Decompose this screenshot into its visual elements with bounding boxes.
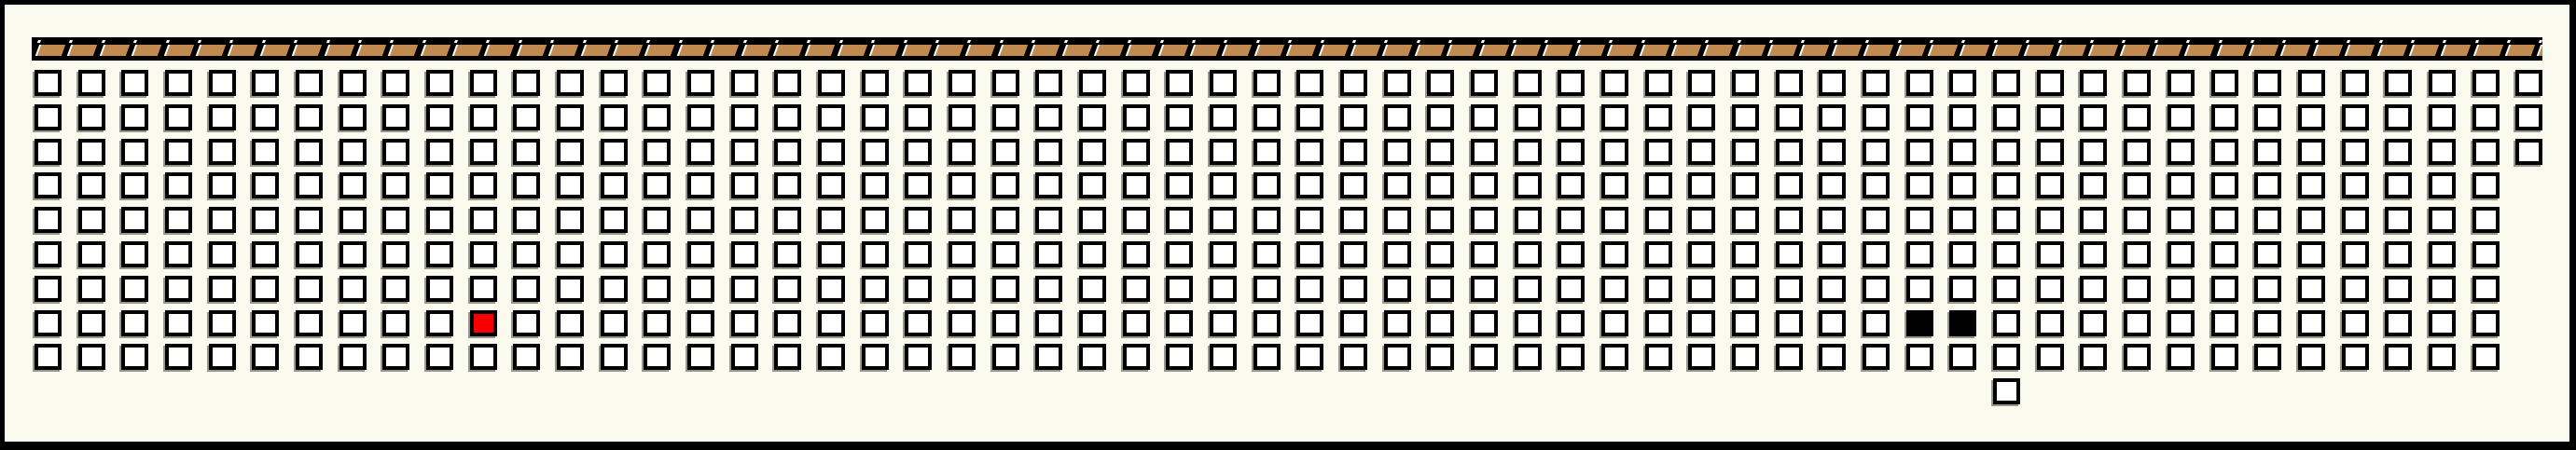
grid-cell[interactable] — [209, 104, 236, 130]
grid-cell[interactable] — [121, 241, 148, 267]
grid-cell[interactable] — [1601, 241, 1628, 267]
grid-cell[interactable] — [2037, 310, 2064, 336]
grid-cell[interactable] — [1471, 104, 1498, 130]
grid-cell[interactable] — [687, 207, 714, 233]
grid-cell[interactable] — [1515, 310, 1542, 336]
grid-cell[interactable] — [2298, 344, 2325, 370]
grid-cell[interactable] — [1427, 104, 1454, 130]
grid-cell[interactable] — [2342, 241, 2369, 267]
grid-cell[interactable] — [513, 139, 540, 165]
grid-cell[interactable] — [1558, 241, 1585, 267]
grid-cell[interactable] — [1166, 207, 1193, 233]
grid-cell[interactable] — [1819, 276, 1846, 302]
grid-cell[interactable] — [2037, 139, 2064, 165]
grid-cell[interactable] — [1035, 70, 1062, 96]
grid-cell[interactable] — [35, 172, 62, 198]
grid-cell[interactable] — [2385, 344, 2412, 370]
grid-cell[interactable] — [1210, 276, 1237, 302]
grid-cell[interactable] — [731, 139, 758, 165]
grid-cell[interactable] — [601, 104, 628, 130]
grid-cell[interactable] — [252, 139, 279, 165]
grid-cell[interactable] — [2254, 172, 2281, 198]
grid-cell[interactable] — [1296, 207, 1323, 233]
grid-cell[interactable] — [949, 70, 976, 96]
grid-cell[interactable] — [426, 139, 453, 165]
grid-cell[interactable] — [687, 104, 714, 130]
grid-cell[interactable] — [1427, 139, 1454, 165]
grid-cell[interactable] — [1906, 104, 1933, 130]
grid-cell[interactable] — [1558, 104, 1585, 130]
grid-cell[interactable] — [2254, 207, 2281, 233]
grid-cell[interactable] — [470, 139, 497, 165]
grid-cell[interactable] — [1645, 207, 1672, 233]
grid-cell[interactable] — [426, 207, 453, 233]
grid-cell[interactable] — [2515, 104, 2542, 130]
grid-cell[interactable] — [78, 276, 105, 302]
grid-cell[interactable] — [382, 104, 409, 130]
grid-cell[interactable] — [2429, 139, 2456, 165]
grid-cell[interactable] — [1471, 172, 1498, 198]
grid-cell[interactable] — [1993, 276, 2020, 302]
grid-cell[interactable] — [1296, 276, 1323, 302]
grid-cell[interactable] — [1384, 139, 1411, 165]
grid-cell[interactable] — [992, 70, 1019, 96]
grid-cell[interactable] — [2298, 172, 2325, 198]
grid-cell[interactable] — [1906, 207, 1933, 233]
grid-cell[interactable] — [818, 104, 845, 130]
grid-cell[interactable] — [2342, 310, 2369, 336]
grid-cell[interactable] — [687, 344, 714, 370]
grid-cell[interactable] — [2080, 104, 2107, 130]
grid-cell[interactable] — [1035, 344, 1062, 370]
grid-cell[interactable] — [1863, 310, 1890, 336]
grid-cell[interactable] — [2254, 241, 2281, 267]
grid-cell[interactable] — [2298, 70, 2325, 96]
grid-cell[interactable] — [1645, 104, 1672, 130]
grid-cell[interactable] — [905, 70, 932, 96]
grid-cell[interactable] — [1384, 241, 1411, 267]
grid-cell[interactable] — [2298, 139, 2325, 165]
grid-cell[interactable] — [687, 172, 714, 198]
grid-cell[interactable] — [1515, 276, 1542, 302]
grid-cell[interactable] — [2124, 207, 2151, 233]
grid-cell[interactable] — [1166, 310, 1193, 336]
grid-cell[interactable] — [1558, 207, 1585, 233]
grid-cell[interactable] — [1776, 70, 1803, 96]
grid-cell[interactable] — [731, 70, 758, 96]
grid-cell[interactable] — [1166, 104, 1193, 130]
grid-cell[interactable] — [1166, 70, 1193, 96]
grid-cell[interactable] — [905, 310, 932, 336]
grid-cell[interactable] — [2515, 139, 2542, 165]
grid-cell[interactable] — [426, 172, 453, 198]
grid-cell[interactable] — [35, 104, 62, 130]
grid-cell[interactable] — [2211, 207, 2238, 233]
grid-cell[interactable] — [1906, 172, 1933, 198]
grid-cell[interactable] — [774, 344, 801, 370]
grid-cell[interactable] — [1515, 207, 1542, 233]
grid-cell[interactable] — [731, 207, 758, 233]
grid-cell[interactable] — [862, 207, 889, 233]
grid-cell[interactable] — [339, 207, 367, 233]
grid-cell[interactable] — [905, 241, 932, 267]
lone-cell[interactable] — [1993, 378, 2020, 404]
grid-cell[interactable] — [1949, 344, 1976, 370]
grid-cell[interactable] — [339, 344, 367, 370]
grid-cell[interactable] — [905, 139, 932, 165]
grid-cell[interactable] — [1732, 207, 1759, 233]
grid-cell[interactable] — [1427, 310, 1454, 336]
grid-cell[interactable] — [949, 139, 976, 165]
grid-cell[interactable] — [1166, 172, 1193, 198]
grid-cell[interactable] — [2167, 241, 2195, 267]
grid-cell[interactable] — [1601, 139, 1628, 165]
grid-cell[interactable] — [731, 241, 758, 267]
grid-cell[interactable] — [1123, 344, 1150, 370]
grid-cell[interactable] — [557, 172, 584, 198]
grid-cell[interactable] — [78, 104, 105, 130]
grid-cell[interactable] — [774, 139, 801, 165]
grid-cell[interactable] — [949, 104, 976, 130]
grid-cell[interactable] — [2472, 172, 2500, 198]
grid-cell[interactable] — [1253, 139, 1281, 165]
grid-cell[interactable] — [165, 310, 192, 336]
grid-cell[interactable] — [35, 70, 62, 96]
grid-cell[interactable] — [1863, 70, 1890, 96]
grid-cell[interactable] — [2080, 172, 2107, 198]
grid-cell[interactable] — [1732, 70, 1759, 96]
grid-cell[interactable] — [1340, 70, 1367, 96]
grid-cell[interactable] — [2254, 276, 2281, 302]
grid-cell[interactable] — [731, 344, 758, 370]
grid-cell[interactable] — [2211, 310, 2238, 336]
grid-cell[interactable] — [1601, 207, 1628, 233]
grid-cell[interactable] — [35, 241, 62, 267]
grid-cell[interactable] — [1253, 104, 1281, 130]
grid-cell[interactable] — [2472, 104, 2500, 130]
grid-cell[interactable] — [601, 207, 628, 233]
grid-cell[interactable] — [382, 172, 409, 198]
grid-cell[interactable] — [2167, 139, 2195, 165]
grid-cell[interactable] — [2037, 172, 2064, 198]
grid-cell[interactable] — [339, 310, 367, 336]
grid-cell[interactable] — [1688, 207, 1715, 233]
grid-cell[interactable] — [557, 139, 584, 165]
grid-cell[interactable] — [1340, 241, 1367, 267]
grid-cell[interactable] — [121, 139, 148, 165]
grid-cell[interactable] — [165, 207, 192, 233]
grid-cell[interactable] — [2254, 310, 2281, 336]
red-cell[interactable] — [470, 310, 497, 336]
grid-cell[interactable] — [1558, 310, 1585, 336]
grid-cell[interactable] — [905, 172, 932, 198]
grid-cell[interactable] — [470, 344, 497, 370]
grid-cell[interactable] — [862, 172, 889, 198]
grid-cell[interactable] — [1993, 104, 2020, 130]
grid-cell[interactable] — [1776, 276, 1803, 302]
grid-cell[interactable] — [209, 241, 236, 267]
grid-cell[interactable] — [862, 104, 889, 130]
grid-cell[interactable] — [687, 139, 714, 165]
grid-cell[interactable] — [296, 241, 323, 267]
grid-cell[interactable] — [1253, 70, 1281, 96]
grid-cell[interactable] — [382, 276, 409, 302]
grid-cell[interactable] — [2080, 70, 2107, 96]
grid-cell[interactable] — [992, 344, 1019, 370]
grid-cell[interactable] — [1384, 344, 1411, 370]
grid-cell[interactable] — [1863, 207, 1890, 233]
grid-cell[interactable] — [1035, 310, 1062, 336]
grid-cell[interactable] — [1776, 104, 1803, 130]
grid-cell[interactable] — [1601, 276, 1628, 302]
grid-cell[interactable] — [35, 139, 62, 165]
grid-cell[interactable] — [1732, 344, 1759, 370]
grid-cell[interactable] — [1340, 276, 1367, 302]
grid-cell[interactable] — [557, 344, 584, 370]
grid-cell[interactable] — [2080, 241, 2107, 267]
grid-cell[interactable] — [78, 70, 105, 96]
grid-cell[interactable] — [687, 241, 714, 267]
grid-cell[interactable] — [1688, 344, 1715, 370]
grid-cell[interactable] — [2211, 241, 2238, 267]
grid-cell[interactable] — [949, 344, 976, 370]
grid-cell[interactable] — [1601, 344, 1628, 370]
grid-cell[interactable] — [2124, 70, 2151, 96]
grid-cell[interactable] — [2385, 207, 2412, 233]
grid-cell[interactable] — [252, 310, 279, 336]
grid-cell[interactable] — [35, 344, 62, 370]
grid-cell[interactable] — [949, 241, 976, 267]
grid-cell[interactable] — [1688, 276, 1715, 302]
grid-cell[interactable] — [1558, 70, 1585, 96]
grid-cell[interactable] — [1123, 104, 1150, 130]
grid-cell[interactable] — [862, 241, 889, 267]
grid-cell[interactable] — [121, 104, 148, 130]
grid-cell[interactable] — [296, 104, 323, 130]
grid-cell[interactable] — [1601, 310, 1628, 336]
grid-cell[interactable] — [2429, 70, 2456, 96]
grid-cell[interactable] — [470, 172, 497, 198]
grid-cell[interactable] — [818, 139, 845, 165]
grid-cell[interactable] — [1515, 172, 1542, 198]
grid-cell[interactable] — [992, 207, 1019, 233]
grid-cell[interactable] — [339, 104, 367, 130]
grid-cell[interactable] — [426, 310, 453, 336]
grid-cell[interactable] — [557, 276, 584, 302]
grid-cell[interactable] — [644, 310, 671, 336]
grid-cell[interactable] — [601, 172, 628, 198]
grid-cell[interactable] — [209, 207, 236, 233]
grid-cell[interactable] — [2472, 344, 2500, 370]
grid-cell[interactable] — [1253, 172, 1281, 198]
grid-cell[interactable] — [1688, 104, 1715, 130]
grid-cell[interactable] — [121, 207, 148, 233]
grid-cell[interactable] — [1079, 344, 1106, 370]
grid-cell[interactable] — [1384, 70, 1411, 96]
grid-cell[interactable] — [1123, 310, 1150, 336]
grid-cell[interactable] — [1079, 104, 1106, 130]
grid-cell[interactable] — [818, 70, 845, 96]
grid-cell[interactable] — [470, 70, 497, 96]
grid-cell[interactable] — [78, 241, 105, 267]
grid-cell[interactable] — [165, 276, 192, 302]
grid-cell[interactable] — [426, 276, 453, 302]
grid-cell[interactable] — [1515, 139, 1542, 165]
grid-cell[interactable] — [296, 139, 323, 165]
grid-cell[interactable] — [1340, 172, 1367, 198]
grid-cell[interactable] — [339, 70, 367, 96]
grid-cell[interactable] — [2080, 310, 2107, 336]
grid-cell[interactable] — [1210, 139, 1237, 165]
grid-cell[interactable] — [862, 70, 889, 96]
grid-cell[interactable] — [1035, 207, 1062, 233]
grid-cell[interactable] — [1906, 344, 1933, 370]
grid-cell[interactable] — [687, 310, 714, 336]
grid-cell[interactable] — [2037, 344, 2064, 370]
grid-cell[interactable] — [557, 70, 584, 96]
grid-cell[interactable] — [1688, 172, 1715, 198]
grid-cell[interactable] — [644, 241, 671, 267]
grid-cell[interactable] — [2472, 276, 2500, 302]
grid-cell[interactable] — [252, 172, 279, 198]
black-cell-1[interactable] — [1906, 310, 1933, 336]
grid-cell[interactable] — [644, 104, 671, 130]
grid-cell[interactable] — [2342, 104, 2369, 130]
grid-cell[interactable] — [731, 310, 758, 336]
grid-cell[interactable] — [1601, 172, 1628, 198]
grid-cell[interactable] — [1471, 139, 1498, 165]
grid-cell[interactable] — [121, 276, 148, 302]
grid-cell[interactable] — [209, 276, 236, 302]
grid-cell[interactable] — [992, 172, 1019, 198]
grid-cell[interactable] — [992, 276, 1019, 302]
grid-cell[interactable] — [557, 207, 584, 233]
grid-cell[interactable] — [1688, 241, 1715, 267]
grid-cell[interactable] — [1253, 276, 1281, 302]
grid-cell[interactable] — [252, 276, 279, 302]
grid-cell[interactable] — [2124, 310, 2151, 336]
grid-cell[interactable] — [2211, 172, 2238, 198]
grid-cell[interactable] — [296, 70, 323, 96]
grid-cell[interactable] — [1471, 344, 1498, 370]
grid-cell[interactable] — [296, 207, 323, 233]
grid-cell[interactable] — [2211, 139, 2238, 165]
grid-cell[interactable] — [1384, 172, 1411, 198]
grid-cell[interactable] — [2298, 241, 2325, 267]
grid-cell[interactable] — [1471, 241, 1498, 267]
grid-cell[interactable] — [1819, 172, 1846, 198]
grid-cell[interactable] — [1035, 104, 1062, 130]
grid-cell[interactable] — [513, 104, 540, 130]
grid-cell[interactable] — [1471, 70, 1498, 96]
grid-cell[interactable] — [296, 344, 323, 370]
grid-cell[interactable] — [731, 276, 758, 302]
grid-cell[interactable] — [774, 241, 801, 267]
grid-cell[interactable] — [513, 310, 540, 336]
grid-cell[interactable] — [1384, 276, 1411, 302]
grid-cell[interactable] — [78, 139, 105, 165]
grid-cell[interactable] — [2298, 310, 2325, 336]
grid-cell[interactable] — [1253, 241, 1281, 267]
grid-cell[interactable] — [1166, 344, 1193, 370]
grid-cell[interactable] — [209, 172, 236, 198]
grid-cell[interactable] — [382, 344, 409, 370]
grid-cell[interactable] — [382, 310, 409, 336]
grid-cell[interactable] — [1471, 310, 1498, 336]
grid-cell[interactable] — [862, 139, 889, 165]
grid-cell[interactable] — [2472, 139, 2500, 165]
grid-cell[interactable] — [774, 207, 801, 233]
grid-cell[interactable] — [1515, 241, 1542, 267]
grid-cell[interactable] — [1515, 70, 1542, 96]
grid-cell[interactable] — [992, 104, 1019, 130]
grid-cell[interactable] — [1645, 344, 1672, 370]
grid-cell[interactable] — [2167, 104, 2195, 130]
grid-cell[interactable] — [2342, 276, 2369, 302]
grid-cell[interactable] — [339, 172, 367, 198]
grid-cell[interactable] — [905, 276, 932, 302]
grid-cell[interactable] — [382, 241, 409, 267]
grid-cell[interactable] — [1949, 241, 1976, 267]
grid-cell[interactable] — [2124, 139, 2151, 165]
grid-cell[interactable] — [644, 344, 671, 370]
grid-cell[interactable] — [2342, 139, 2369, 165]
grid-cell[interactable] — [252, 344, 279, 370]
grid-cell[interactable] — [1688, 310, 1715, 336]
grid-cell[interactable] — [165, 241, 192, 267]
grid-cell[interactable] — [165, 172, 192, 198]
grid-cell[interactable] — [2429, 310, 2456, 336]
grid-cell[interactable] — [1296, 104, 1323, 130]
grid-cell[interactable] — [818, 310, 845, 336]
grid-cell[interactable] — [209, 344, 236, 370]
grid-cell[interactable] — [426, 104, 453, 130]
grid-cell[interactable] — [2167, 276, 2195, 302]
grid-cell[interactable] — [1427, 70, 1454, 96]
grid-cell[interactable] — [2037, 104, 2064, 130]
grid-cell[interactable] — [470, 241, 497, 267]
grid-cell[interactable] — [1123, 241, 1150, 267]
grid-cell[interactable] — [1645, 241, 1672, 267]
grid-cell[interactable] — [2080, 344, 2107, 370]
grid-cell[interactable] — [774, 172, 801, 198]
grid-cell[interactable] — [601, 344, 628, 370]
grid-cell[interactable] — [1776, 207, 1803, 233]
grid-cell[interactable] — [513, 344, 540, 370]
grid-cell[interactable] — [1210, 310, 1237, 336]
grid-cell[interactable] — [774, 104, 801, 130]
grid-cell[interactable] — [2211, 70, 2238, 96]
grid-cell[interactable] — [1427, 172, 1454, 198]
grid-cell[interactable] — [2385, 241, 2412, 267]
grid-cell[interactable] — [1210, 344, 1237, 370]
grid-cell[interactable] — [209, 70, 236, 96]
grid-cell[interactable] — [1819, 70, 1846, 96]
grid-cell[interactable] — [1863, 241, 1890, 267]
grid-cell[interactable] — [1558, 344, 1585, 370]
grid-cell[interactable] — [1166, 241, 1193, 267]
grid-cell[interactable] — [2124, 241, 2151, 267]
grid-cell[interactable] — [2385, 310, 2412, 336]
grid-cell[interactable] — [2167, 70, 2195, 96]
grid-cell[interactable] — [470, 207, 497, 233]
grid-cell[interactable] — [2385, 172, 2412, 198]
grid-cell[interactable] — [949, 172, 976, 198]
grid-cell[interactable] — [1776, 344, 1803, 370]
grid-cell[interactable] — [2298, 207, 2325, 233]
grid-cell[interactable] — [121, 70, 148, 96]
grid-cell[interactable] — [296, 276, 323, 302]
